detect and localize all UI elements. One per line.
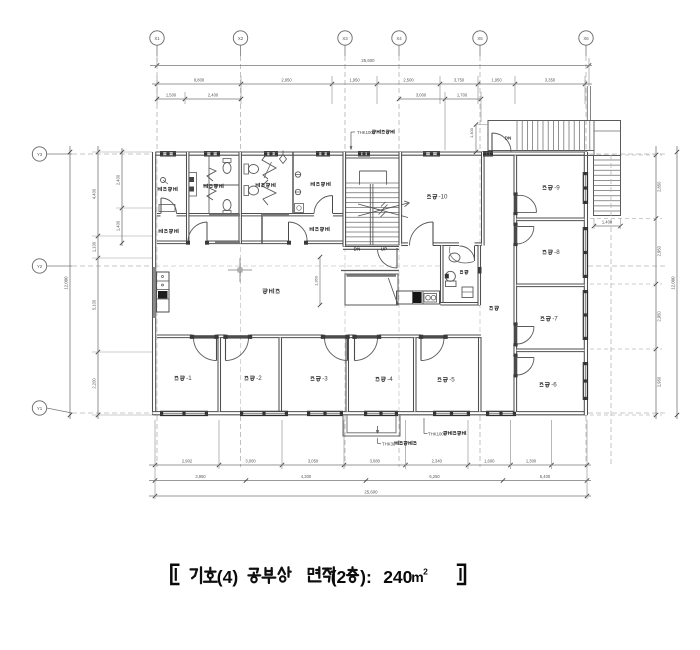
svg-text:(2: (2 xyxy=(331,567,347,587)
svg-text:):: ): xyxy=(360,567,372,587)
svg-text:3,000: 3,000 xyxy=(245,459,256,464)
svg-text:2,400: 2,400 xyxy=(208,93,219,98)
svg-text:1,300: 1,300 xyxy=(526,459,537,464)
svg-text:1,100: 1,100 xyxy=(92,241,97,252)
svg-text:2: 2 xyxy=(423,567,428,577)
svg-text:1,700: 1,700 xyxy=(457,93,468,98)
svg-text:25,600: 25,600 xyxy=(361,58,375,63)
svg-text:3,350: 3,350 xyxy=(545,78,556,83)
svg-text:-6: -6 xyxy=(551,381,557,388)
svg-text:240: 240 xyxy=(383,567,412,587)
svg-text:5,100: 5,100 xyxy=(92,299,97,310)
svg-text:2,950: 2,950 xyxy=(657,311,662,322)
svg-text:2,340: 2,340 xyxy=(432,459,443,464)
svg-text:UP: UP xyxy=(381,247,387,252)
svg-text:3,000: 3,000 xyxy=(416,93,427,98)
svg-text:1,950: 1,950 xyxy=(491,78,502,83)
svg-text:Y1: Y1 xyxy=(37,406,43,411)
svg-text:DN: DN xyxy=(505,136,512,141)
svg-text:X6: X6 xyxy=(583,36,589,41)
svg-text:25,600: 25,600 xyxy=(364,490,378,495)
svg-text:-3: -3 xyxy=(322,375,328,382)
svg-text:12,000: 12,000 xyxy=(64,276,69,290)
svg-text:THK100: THK100 xyxy=(428,431,444,436)
svg-text:-2: -2 xyxy=(256,375,262,382)
svg-text:Y3: Y3 xyxy=(37,152,43,157)
svg-text:1,950: 1,950 xyxy=(349,78,360,83)
svg-text:-5: -5 xyxy=(449,376,455,383)
svg-text:3,050: 3,050 xyxy=(308,459,319,464)
svg-text:THK100: THK100 xyxy=(357,130,373,135)
svg-text:-1: -1 xyxy=(186,375,192,382)
svg-text:2,950: 2,950 xyxy=(657,245,662,256)
svg-text:1,600: 1,600 xyxy=(484,459,495,464)
svg-text:X3: X3 xyxy=(342,36,348,41)
svg-text:2,400: 2,400 xyxy=(116,174,121,185)
svg-text:-8: -8 xyxy=(554,249,560,256)
svg-text:DN: DN xyxy=(354,247,361,252)
svg-text:X2: X2 xyxy=(238,36,244,41)
svg-text:m: m xyxy=(411,569,423,585)
svg-text:Y2: Y2 xyxy=(37,264,43,269)
svg-text:2,950: 2,950 xyxy=(281,78,292,83)
svg-text:1,400: 1,400 xyxy=(469,127,474,138)
svg-text:3,750: 3,750 xyxy=(454,78,465,83)
svg-text:X5: X5 xyxy=(477,36,483,41)
svg-text:2,200: 2,200 xyxy=(92,378,97,389)
svg-text:THK30: THK30 xyxy=(382,441,396,446)
svg-text:5,400: 5,400 xyxy=(540,474,551,479)
svg-text:4,400: 4,400 xyxy=(92,188,97,199)
svg-text:2,500: 2,500 xyxy=(403,78,414,83)
svg-text:12,000: 12,000 xyxy=(671,276,676,290)
svg-text:6,250: 6,250 xyxy=(429,474,440,479)
svg-text:X4: X4 xyxy=(396,36,402,41)
svg-text:2,950: 2,950 xyxy=(657,376,662,387)
svg-text:-7: -7 xyxy=(552,315,558,322)
svg-text:-4: -4 xyxy=(387,376,393,383)
svg-text:2,902: 2,902 xyxy=(182,459,193,464)
svg-text:3,950: 3,950 xyxy=(195,474,206,479)
svg-text:2,850: 2,850 xyxy=(657,181,662,192)
svg-text:1,360: 1,360 xyxy=(314,275,319,286)
svg-text:8,800: 8,800 xyxy=(194,78,205,83)
svg-text:-10: -10 xyxy=(439,193,449,200)
svg-text:X1: X1 xyxy=(154,36,160,41)
svg-text:-9: -9 xyxy=(554,184,560,191)
svg-text:(4): (4) xyxy=(217,567,238,587)
svg-text:3,080: 3,080 xyxy=(370,459,381,464)
svg-text:1,400: 1,400 xyxy=(116,220,121,231)
svg-text:1,500: 1,500 xyxy=(166,93,177,98)
svg-text:4,300: 4,300 xyxy=(301,474,312,479)
